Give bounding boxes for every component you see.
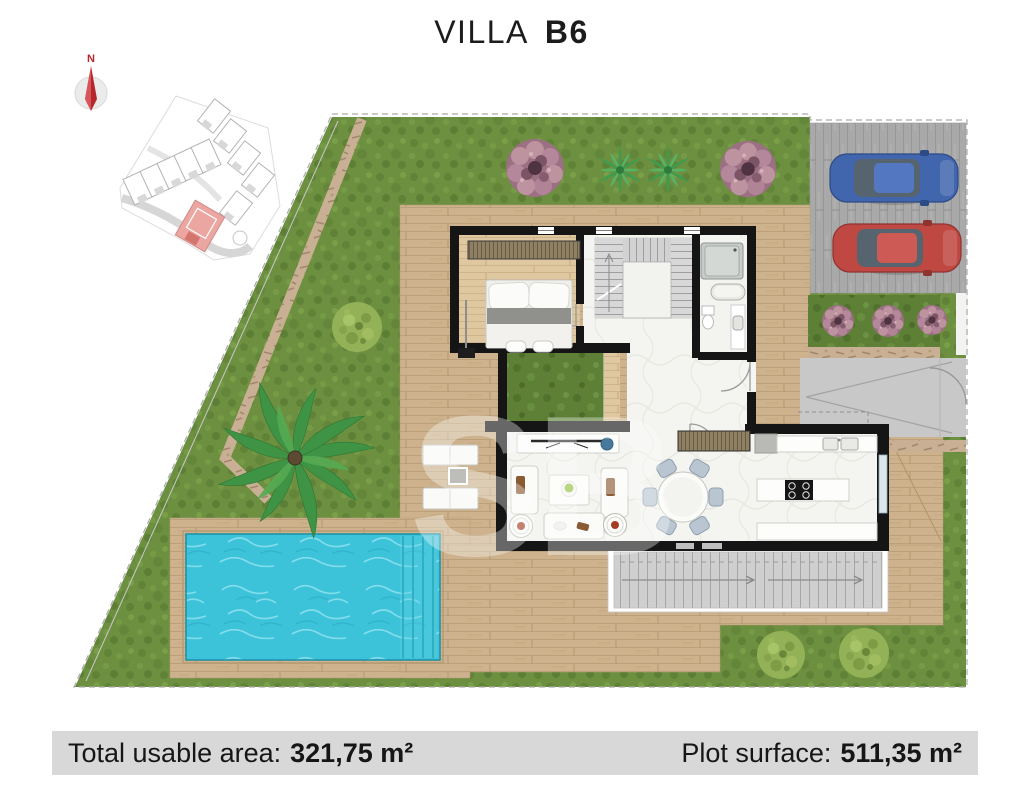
summary-bar: Total usable area:321,75 m² Plot surface… [52, 731, 978, 775]
sideboard [678, 431, 750, 451]
compass-north-label: N [87, 53, 95, 65]
location-map [120, 96, 280, 260]
round-bush [839, 628, 889, 678]
car-red [833, 220, 961, 276]
sink [823, 438, 838, 450]
pink-bush [720, 141, 776, 197]
flower-planter [872, 305, 904, 337]
compass: N [75, 53, 107, 111]
flower-planter [917, 305, 947, 335]
watermark: SB [409, 375, 671, 598]
usable-area-value: 321,75 m² [290, 738, 413, 768]
round-bush [757, 631, 805, 679]
round-bush [332, 302, 382, 352]
toilet [702, 306, 714, 315]
villa-unit: B6 [545, 14, 589, 50]
site-plan: SB N [0, 0, 1023, 800]
highlighted-unit [175, 200, 224, 252]
double-bed [486, 280, 572, 352]
plot-surface-value: 511,35 m² [840, 738, 962, 768]
car-blue [830, 150, 958, 206]
staircase [595, 238, 699, 318]
wardrobe [468, 241, 580, 259]
villa-label: VILLA [434, 14, 529, 50]
flower-planter [822, 305, 854, 337]
page-title: VILLAB6 [0, 14, 1023, 51]
usable-area-label: Total usable area: [68, 738, 281, 768]
total-usable-area: Total usable area:321,75 m² [68, 738, 413, 769]
page: SB N VILLAB6 T [0, 0, 1023, 800]
swimming-pool [183, 531, 443, 663]
roundabout [233, 231, 247, 245]
plot-surface: Plot surface:511,35 m² [681, 738, 962, 769]
plot-surface-label: Plot surface: [681, 738, 831, 768]
pink-bush [506, 139, 564, 197]
driveway-parking [810, 123, 966, 293]
